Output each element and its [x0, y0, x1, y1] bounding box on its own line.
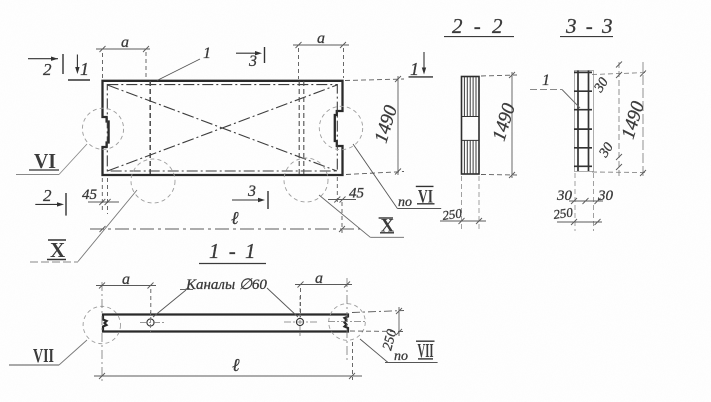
svg-text:1: 1: [80, 59, 89, 79]
svg-text:3: 3: [248, 53, 257, 70]
svg-text:VII: VII: [33, 345, 54, 367]
svg-text:1: 1: [542, 72, 550, 89]
svg-text:3: 3: [247, 183, 256, 200]
svg-text:ℓ: ℓ: [231, 208, 239, 228]
svg-text:a: a: [122, 271, 130, 288]
svg-text:45: 45: [349, 186, 365, 202]
svg-text:250: 250: [441, 205, 463, 223]
svg-text:2: 2: [43, 186, 52, 205]
svg-text:1: 1: [203, 45, 211, 62]
svg-text:250: 250: [552, 204, 574, 222]
svg-text:X: X: [50, 238, 65, 262]
svg-text:a: a: [121, 34, 129, 51]
svg-text:a: a: [315, 270, 323, 287]
svg-text:ℓ: ℓ: [232, 355, 240, 375]
svg-text:по: по: [394, 349, 408, 364]
svg-text:45: 45: [82, 187, 98, 203]
svg-text:30: 30: [597, 188, 614, 204]
svg-text:по: по: [398, 195, 412, 210]
svg-text:2: 2: [43, 60, 52, 79]
svg-text:3 - 3: 3 - 3: [565, 14, 615, 38]
svg-text:1: 1: [410, 59, 419, 79]
svg-text:1 - 1: 1 - 1: [209, 239, 258, 263]
svg-text:2 - 2: 2 - 2: [452, 14, 506, 38]
svg-text:30: 30: [556, 188, 573, 204]
svg-text:Каналы ∅60: Каналы ∅60: [185, 277, 267, 293]
svg-text:a: a: [317, 30, 325, 47]
